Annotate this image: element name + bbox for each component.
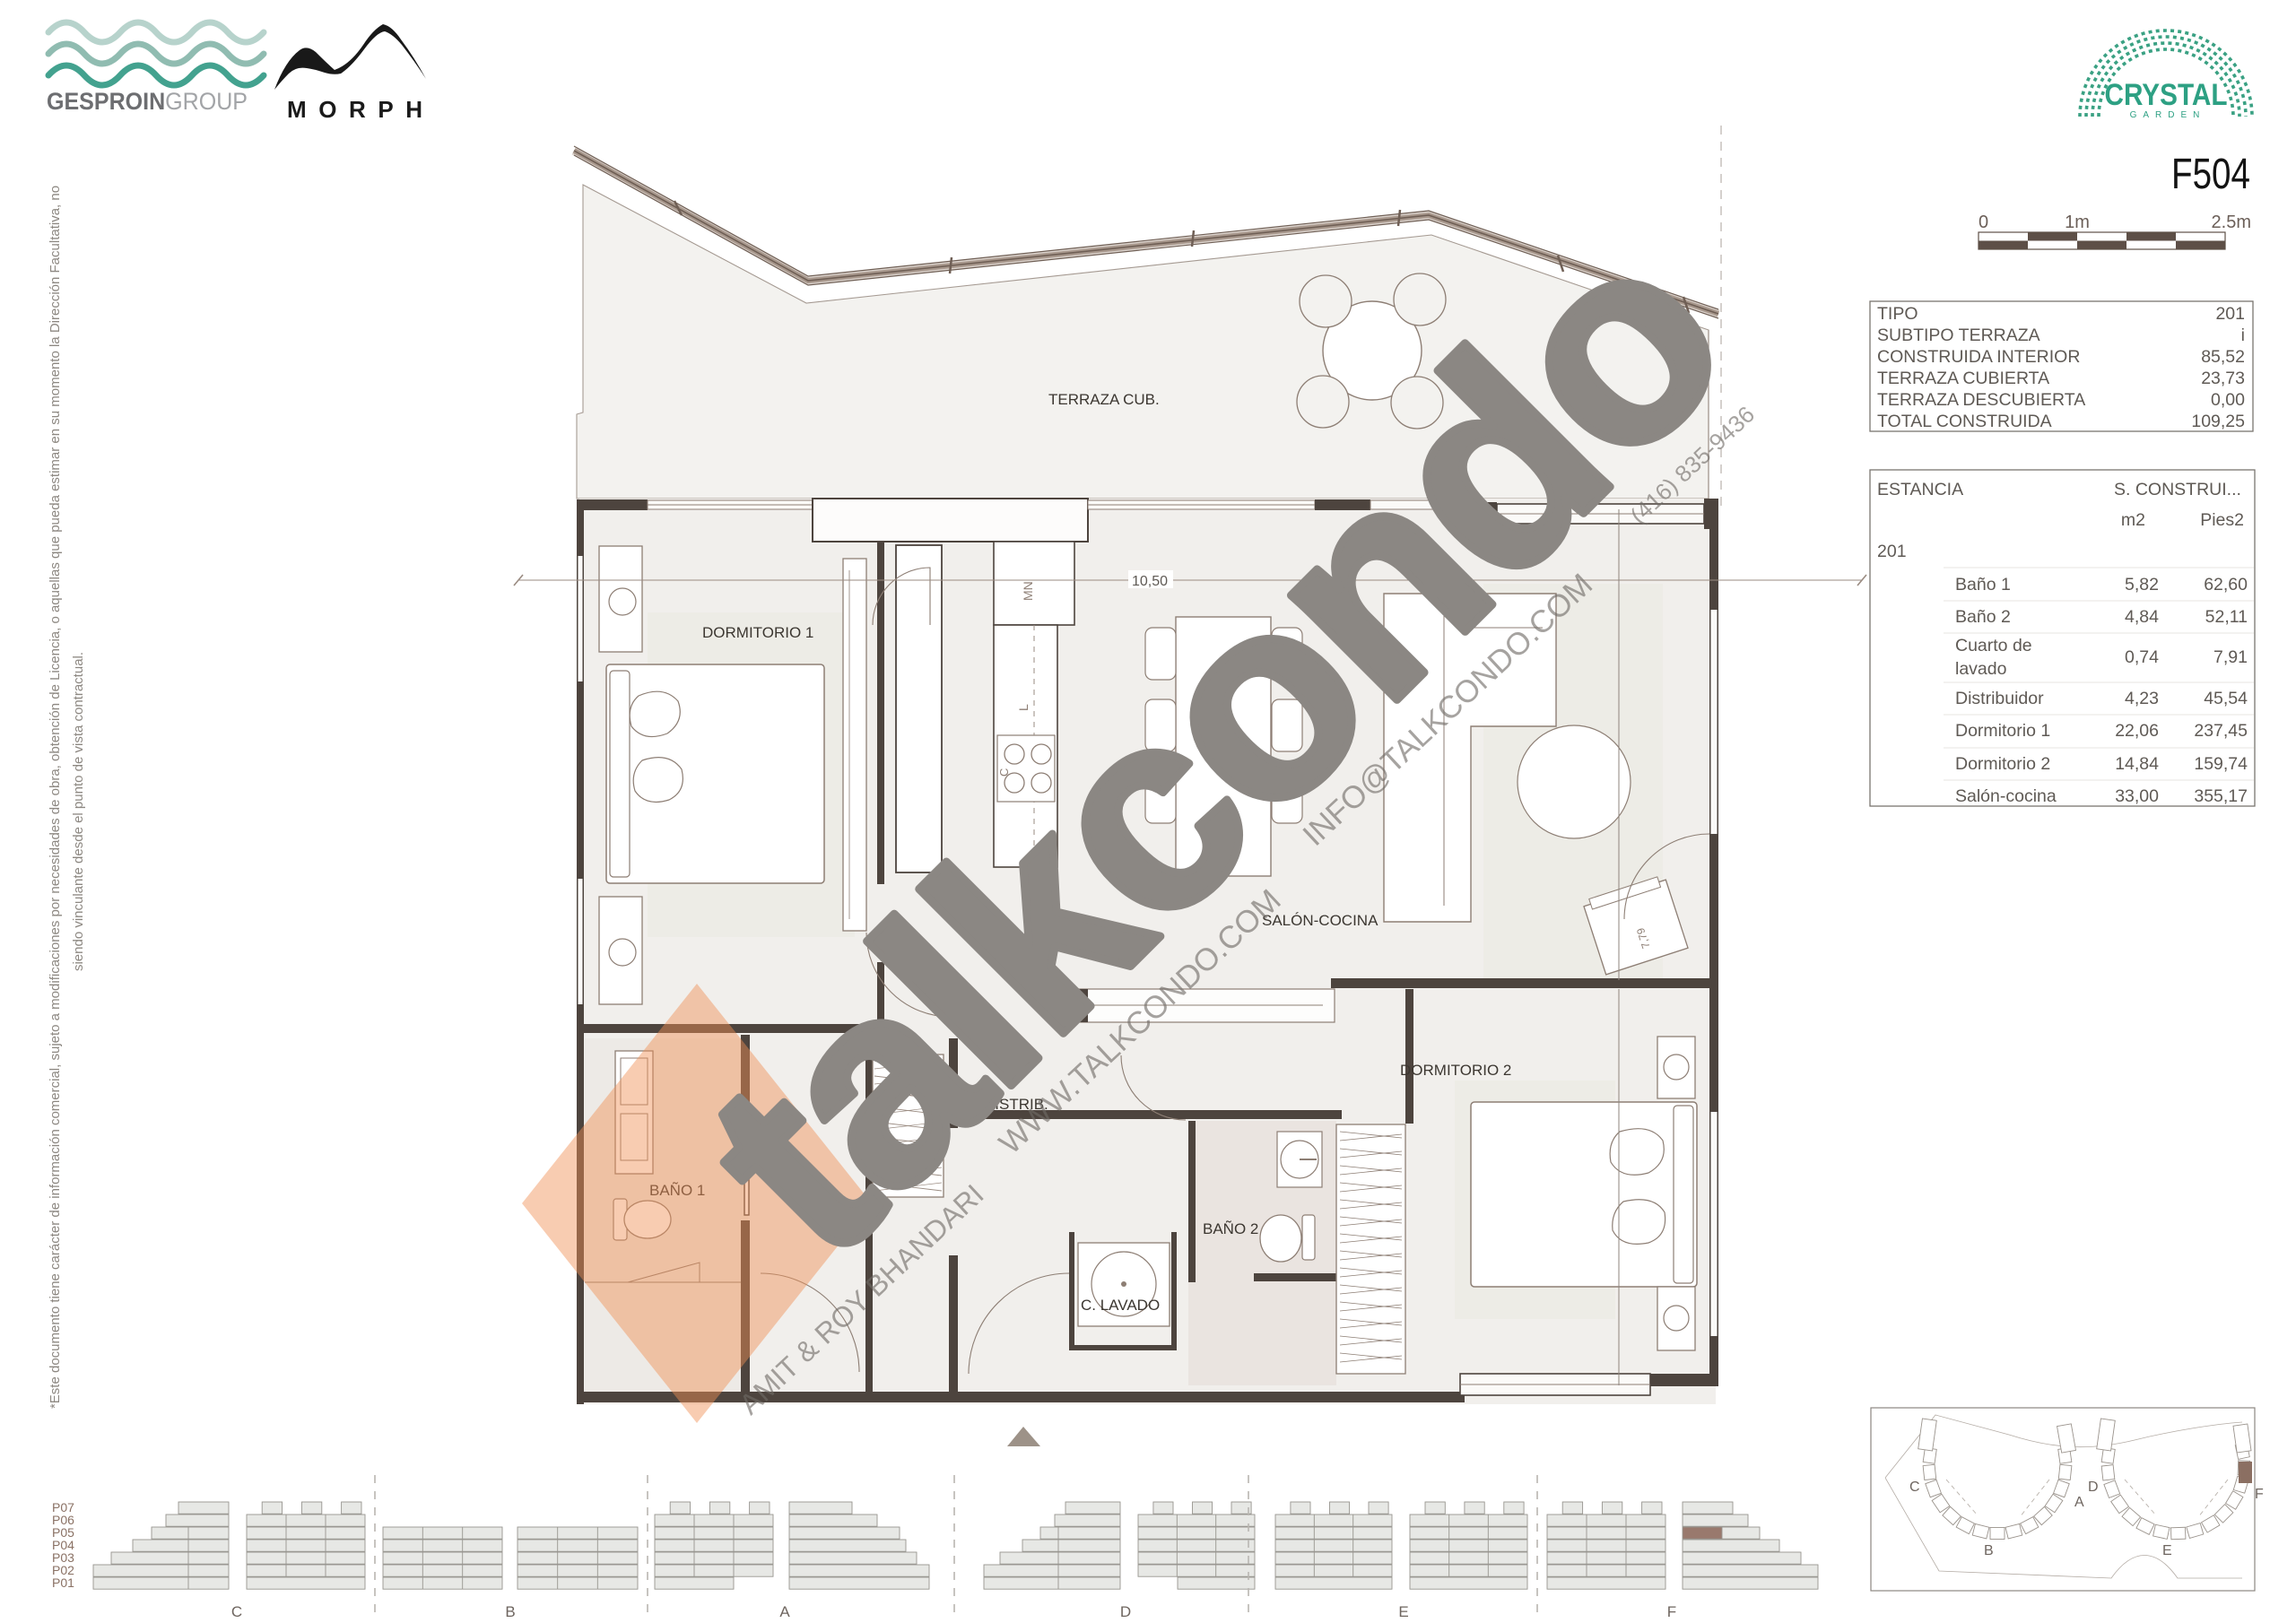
svg-text:TERRAZA CUB.: TERRAZA CUB.: [1048, 391, 1160, 408]
svg-text:DORMITORIO 1: DORMITORIO 1: [702, 624, 813, 641]
svg-text:F: F: [1667, 1603, 1676, 1620]
svg-text:S. CONSTRUI...: S. CONSTRUI...: [2114, 480, 2241, 499]
svg-text:Salón-cocina: Salón-cocina: [1955, 786, 2057, 806]
svg-text:2.5m: 2.5m: [2212, 213, 2251, 232]
svg-text:E: E: [2162, 1543, 2172, 1558]
svg-text:52,11: 52,11: [2205, 607, 2248, 627]
svg-text:A: A: [779, 1603, 790, 1620]
svg-text:TERRAZA DESCUBIERTA: TERRAZA DESCUBIERTA: [1877, 390, 2085, 410]
svg-text:62,60: 62,60: [2204, 575, 2248, 595]
svg-text:E: E: [1398, 1603, 1408, 1620]
svg-text:22,06: 22,06: [2115, 721, 2159, 741]
svg-text:C: C: [231, 1603, 242, 1620]
svg-text:ESTANCIA: ESTANCIA: [1877, 480, 1963, 499]
svg-text:B: B: [505, 1603, 515, 1620]
svg-text:0,74: 0,74: [2125, 647, 2159, 667]
svg-text:*Este documento tiene carácter: *Este documento tiene carácter de inform…: [48, 186, 63, 1409]
svg-text:TERRAZA CUBIERTA: TERRAZA CUBIERTA: [1877, 369, 2049, 388]
svg-text:14,84: 14,84: [2115, 754, 2159, 774]
svg-text:85,52: 85,52: [2201, 347, 2245, 367]
svg-text:0,00: 0,00: [2211, 390, 2245, 410]
svg-text:5,82: 5,82: [2125, 575, 2159, 595]
svg-text:355,17: 355,17: [2194, 786, 2248, 806]
svg-text:4,84: 4,84: [2125, 607, 2159, 627]
svg-text:m2: m2: [2121, 510, 2145, 530]
svg-text:Dormitorio 2: Dormitorio 2: [1955, 754, 2050, 774]
svg-text:Pies2: Pies2: [2200, 510, 2244, 530]
svg-text:TIPO: TIPO: [1877, 304, 1918, 324]
svg-text:CRYSTAL: CRYSTAL: [2105, 78, 2228, 112]
svg-text:C. LAVADO: C. LAVADO: [1081, 1297, 1160, 1314]
svg-text:4,23: 4,23: [2125, 689, 2159, 708]
svg-text:201: 201: [1877, 542, 1907, 561]
svg-text:CONSTRUIDA INTERIOR: CONSTRUIDA INTERIOR: [1877, 347, 2080, 367]
svg-text:0: 0: [1979, 213, 1988, 232]
svg-text:109,25: 109,25: [2191, 412, 2245, 431]
svg-text:F504: F504: [2171, 151, 2250, 198]
svg-text:DORMITORIO 2: DORMITORIO 2: [1400, 1062, 1511, 1079]
svg-text:SUBTIPO TERRAZA: SUBTIPO TERRAZA: [1877, 325, 2040, 345]
svg-text:Cuarto de: Cuarto de: [1955, 636, 2032, 655]
svg-text:Baño 1: Baño 1: [1955, 575, 2011, 595]
svg-text:siendo vinculante desde el pun: siendo vinculante desde el punto de vist…: [71, 652, 86, 971]
svg-text:B: B: [1984, 1543, 1994, 1558]
svg-text:BAÑO 2: BAÑO 2: [1203, 1220, 1258, 1237]
svg-text:Dormitorio 1: Dormitorio 1: [1955, 721, 2050, 741]
svg-text:P01: P01: [52, 1575, 74, 1590]
svg-text:33,00: 33,00: [2115, 786, 2159, 806]
svg-text:23,73: 23,73: [2201, 369, 2245, 388]
svg-text:159,74: 159,74: [2194, 754, 2248, 774]
svg-text:201: 201: [2215, 304, 2245, 324]
svg-text:MN: MN: [1021, 581, 1035, 601]
svg-text:GESPROINGROUP: GESPROINGROUP: [47, 88, 248, 115]
svg-text:lavado: lavado: [1955, 659, 2007, 679]
svg-text:GARDEN: GARDEN: [2130, 110, 2206, 120]
svg-text:7,91: 7,91: [2213, 647, 2248, 667]
svg-text:237,45: 237,45: [2194, 721, 2248, 741]
svg-text:1m: 1m: [2065, 213, 2090, 232]
svg-text:D: D: [2088, 1480, 2099, 1495]
svg-text:i: i: [2241, 325, 2245, 345]
svg-text:45,54: 45,54: [2204, 689, 2248, 708]
svg-text:D: D: [1120, 1603, 1131, 1620]
svg-text:F: F: [2255, 1487, 2264, 1502]
svg-text:TOTAL CONSTRUIDA: TOTAL CONSTRUIDA: [1877, 412, 2052, 431]
svg-text:C: C: [1909, 1480, 1920, 1495]
svg-text:Distribuidor: Distribuidor: [1955, 689, 2044, 708]
svg-text:A: A: [2074, 1495, 2084, 1510]
svg-text:Baño 2: Baño 2: [1955, 607, 2011, 627]
